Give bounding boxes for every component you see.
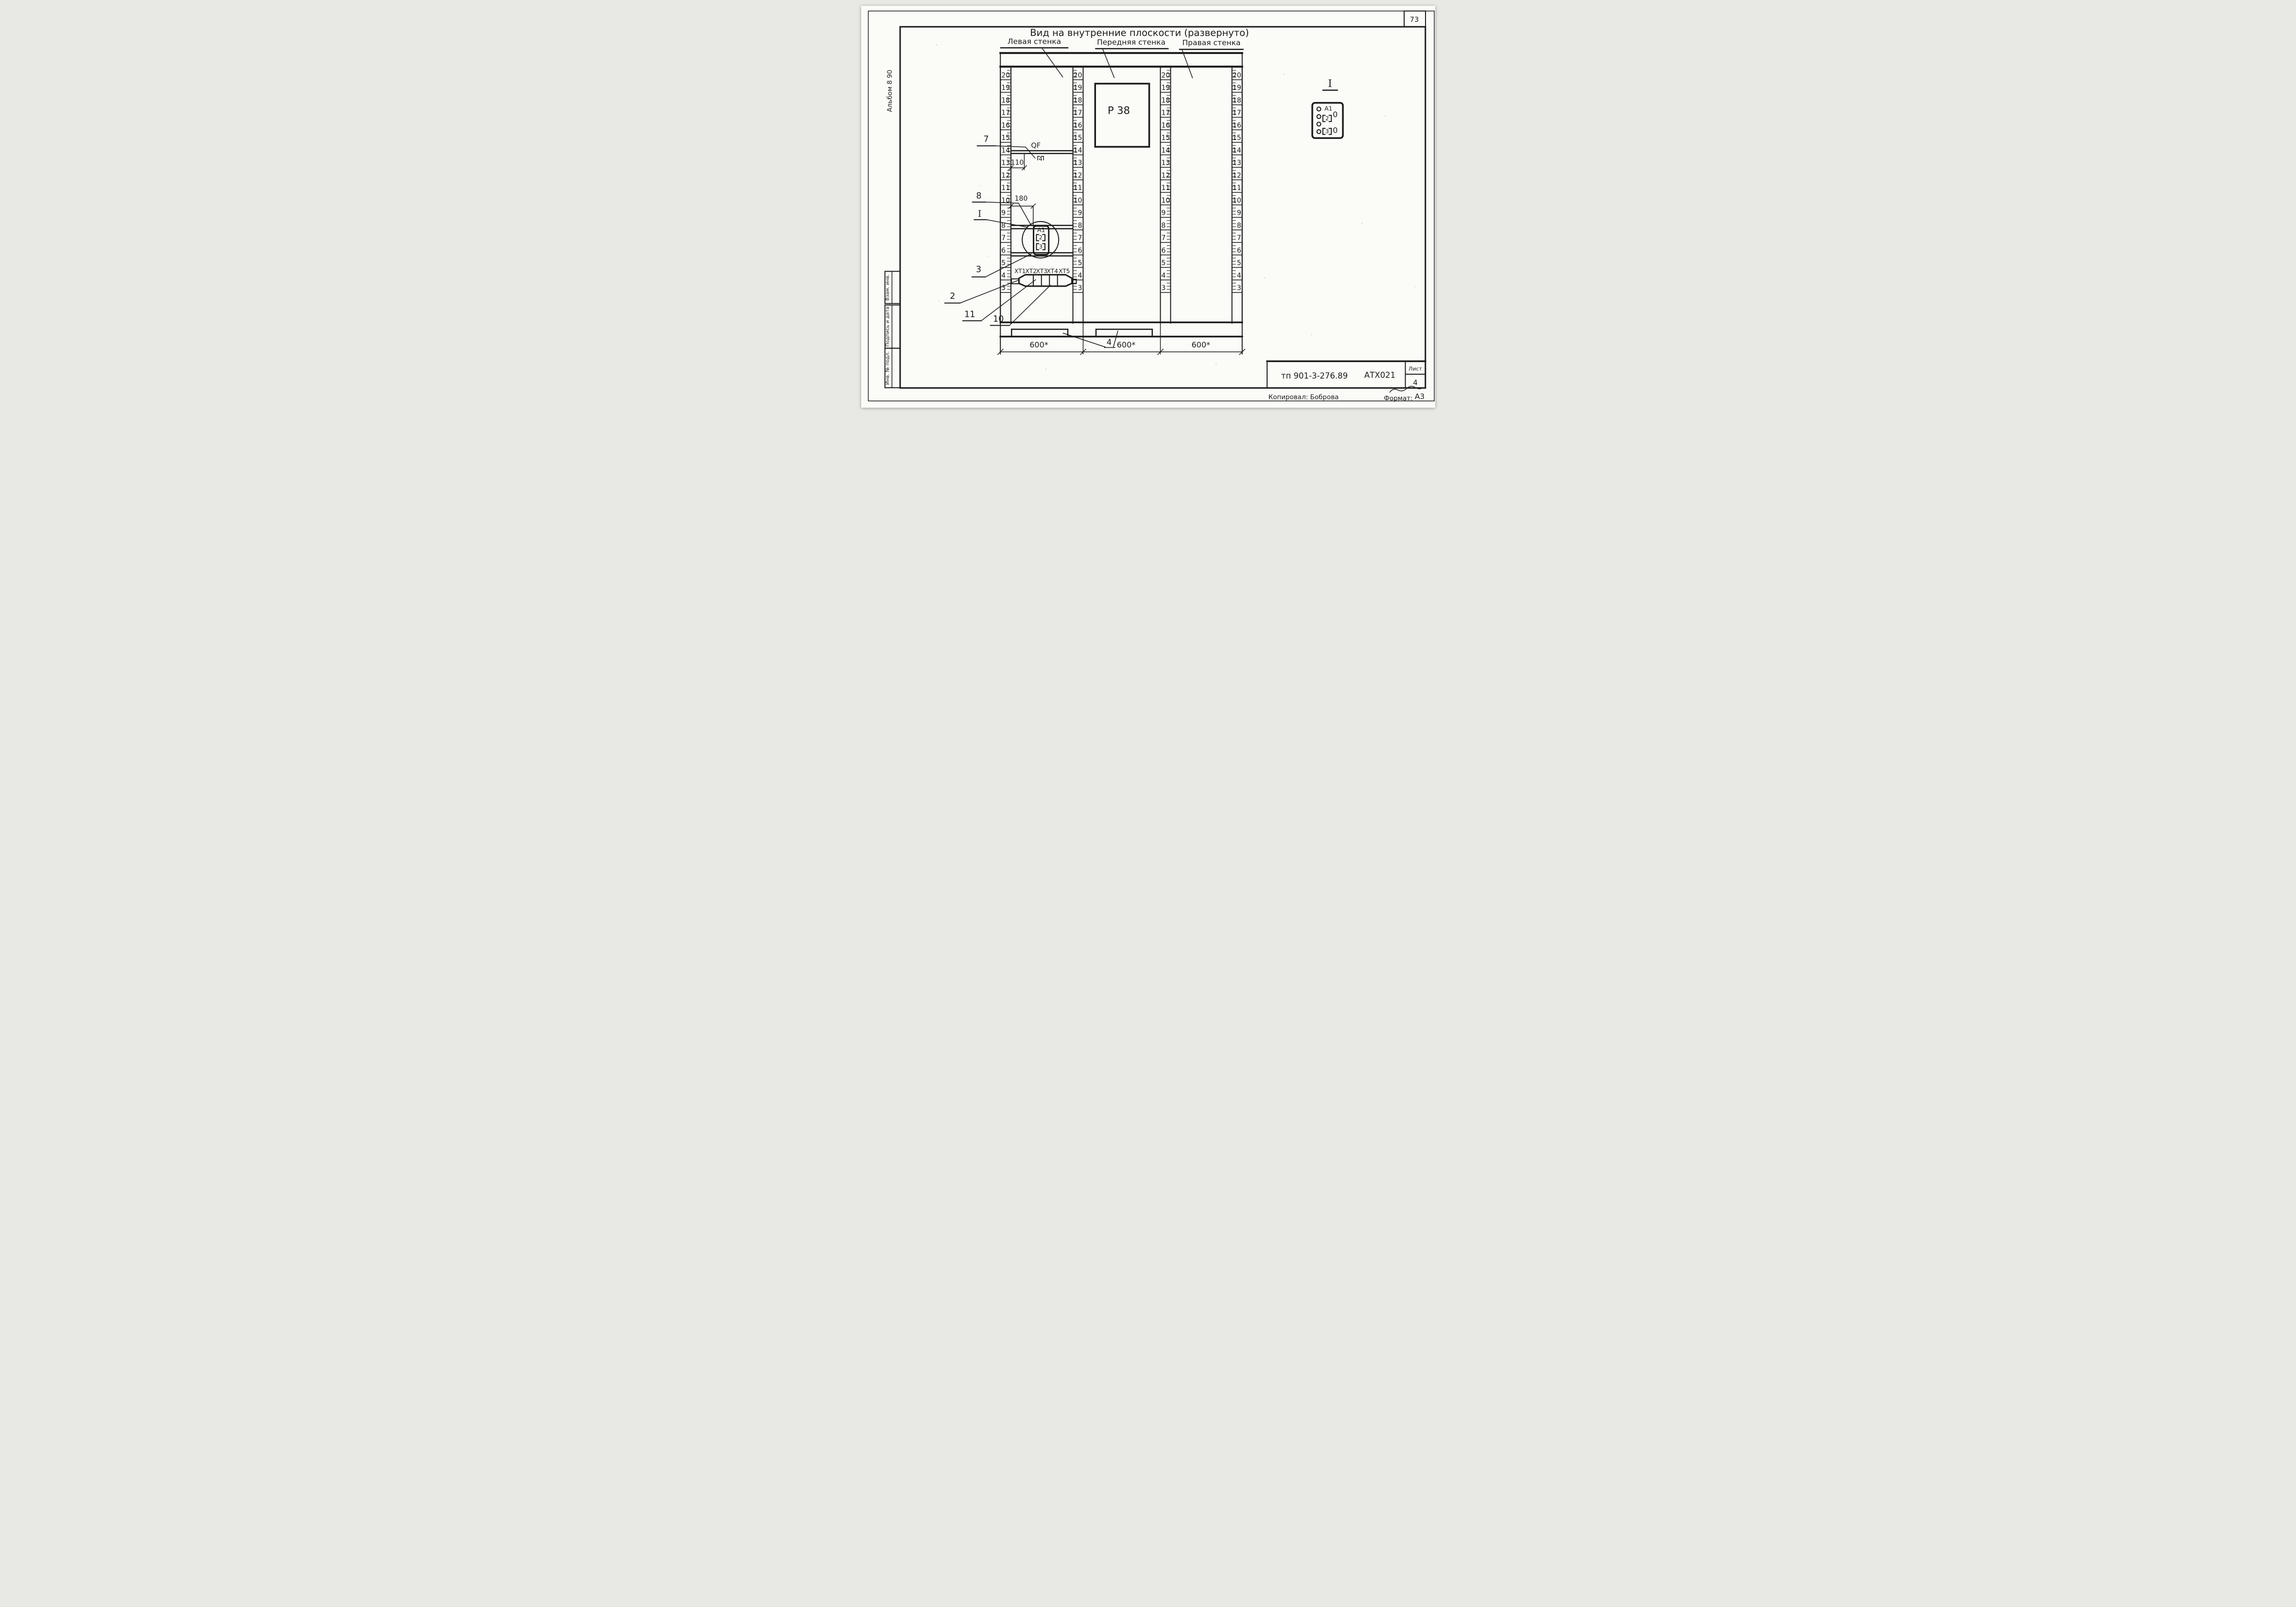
album-note: Альбом 8 90 — [886, 70, 894, 112]
ruler-number: 3 — [1236, 284, 1241, 292]
sheet-label: Лист — [1409, 366, 1422, 372]
ruler-number: 6 — [1001, 247, 1006, 255]
ruler-number: 11 — [1001, 184, 1010, 192]
dim-600-middle: 600* — [1116, 340, 1135, 349]
ruler-number: 6 — [1078, 247, 1082, 255]
p38-panel-label: Р 38 — [1107, 105, 1130, 117]
terminal-label: ХТ4 — [1046, 268, 1058, 275]
ruler-number: 4 — [1161, 272, 1165, 279]
cable-entry-tab — [1011, 329, 1068, 337]
slot-number: 2 — [1039, 234, 1042, 241]
callout-I: I — [977, 209, 981, 219]
sheet-frame: 73 — [868, 11, 1434, 401]
ruler-number: 3 — [1078, 284, 1082, 292]
ruler-number: 20 — [1001, 71, 1010, 79]
terminal-label: ХТ3 — [1036, 268, 1047, 275]
wall-labels: Левая стенка Передняя стенка Правая стен… — [1001, 37, 1243, 78]
ruler-number: 3 — [1161, 284, 1165, 292]
ruler-number: 6 — [1236, 247, 1241, 255]
ruler-number: 20 — [1232, 71, 1241, 79]
ruler-number: 11 — [1232, 184, 1241, 192]
ruler-number: 15 — [1001, 134, 1010, 142]
dim-600-left: 600* — [1029, 340, 1048, 349]
format-label: Формат: — [1384, 395, 1412, 402]
terminal-label: ХТ1 — [1014, 268, 1026, 275]
callout-10: 10 — [993, 314, 1004, 324]
ruler-number: 9 — [1001, 209, 1006, 217]
callout-3: 3 — [975, 265, 981, 275]
ruler-number: 18 — [1073, 97, 1082, 104]
page-number: 73 — [1409, 16, 1418, 24]
detail-I: I А1 2 0 3 0 — [1312, 78, 1343, 138]
ruler-number: 10 — [1161, 197, 1170, 205]
ruler-strip-3: 20191817161514131211109876543 — [1232, 67, 1242, 323]
ruler-number: 5 — [1001, 259, 1006, 267]
left-wall-equipment: QF 4 110 180 А1 — [1009, 142, 1076, 286]
dimension-180: 180 — [1009, 195, 1035, 226]
ruler-number: 11 — [1073, 184, 1082, 192]
a1-block-label: А1 — [1037, 226, 1045, 234]
cabinet-outline: 2019181716151413121110987654320191817161… — [1000, 53, 1242, 354]
slot-bracket — [1036, 243, 1039, 250]
ruler-number: 14 — [1161, 147, 1170, 155]
ruler-number: 10 — [1073, 197, 1082, 205]
ruler-number: 19 — [1232, 84, 1241, 92]
ruler-number: 14 — [1001, 147, 1010, 155]
ruler-number: 13 — [1073, 159, 1082, 167]
terminal-label: ХТ5 — [1059, 268, 1070, 275]
ruler-strip-2: 20191817161514131211109876543 — [1160, 67, 1170, 323]
callout-leader — [987, 220, 1027, 227]
ruler-number: 15 — [1073, 134, 1082, 142]
detail-slot-number: 2 — [1325, 115, 1328, 122]
slot-bracket — [1329, 128, 1331, 135]
detail-device-label: А1 — [1324, 105, 1332, 112]
ruler-number: 13 — [1232, 159, 1241, 167]
ruler-number: 13 — [1001, 159, 1010, 167]
ruler-number: 9 — [1161, 209, 1165, 217]
ruler-number: 18 — [1161, 97, 1170, 104]
copied-by: Копировал: Боброва — [1268, 394, 1339, 401]
callout-leader — [985, 202, 1031, 226]
cable-entry-tab — [1096, 329, 1152, 337]
ruler-number: 15 — [1232, 134, 1241, 142]
callout-11: 11 — [964, 310, 975, 320]
ruler-number: 17 — [1232, 109, 1241, 117]
ruler-number: 7 — [1161, 234, 1165, 242]
ruler-strip-0: 20191817161514131211109876543 — [1000, 67, 1011, 323]
outer-border — [868, 11, 1434, 401]
slot-bracket — [1322, 115, 1325, 121]
ruler-number: 20 — [1073, 71, 1082, 79]
ruler-number: 6 — [1161, 247, 1165, 255]
slot-number: 3 — [1039, 243, 1042, 250]
dim-600-right: 600* — [1191, 340, 1210, 349]
ruler-number: 12 — [1001, 172, 1010, 179]
slot-bracket — [1043, 243, 1045, 250]
ruler-number: 12 — [1232, 172, 1241, 179]
dim-180-text: 180 — [1014, 195, 1027, 203]
wall-label-right: Правая стенка — [1182, 38, 1240, 47]
ruler-number: 4 — [1078, 272, 1082, 279]
ruler-number: 9 — [1236, 209, 1241, 217]
callout-2: 2 — [950, 292, 955, 301]
rail-position-marker: 4 — [1038, 156, 1044, 162]
slot-bracket — [1322, 128, 1325, 135]
terminal-block-body — [1019, 275, 1072, 286]
margin-stamps: Альбом 8 90 Взам. инв. Подпись и дата Ин… — [885, 70, 900, 388]
ruler-number: 17 — [1001, 109, 1010, 117]
scan-speckle — [936, 44, 1415, 369]
sheet-number: 4 — [1413, 379, 1418, 387]
ruler-number: 7 — [1236, 234, 1241, 242]
callout-8: 8 — [976, 191, 981, 201]
controller-a1-block: А1 2 3 — [1033, 226, 1048, 255]
scanned-drawing-sheet: 73 Альбом 8 90 Взам. инв. Подпись и дата… — [861, 6, 1435, 408]
ruler-number: 5 — [1078, 259, 1082, 267]
rail-marker-number: 4 — [1039, 156, 1043, 162]
ruler-number: 4 — [1001, 272, 1006, 279]
doc-code: тп 901-3-276.89 — [1281, 371, 1347, 380]
callout-leader — [1063, 333, 1105, 347]
doc-mark: АТХ021 — [1364, 371, 1395, 380]
ruler-number: 11 — [1161, 184, 1170, 192]
ruler-number: 12 — [1073, 172, 1082, 179]
ruler-number: 4 — [1236, 272, 1241, 279]
ruler-number: 16 — [1161, 121, 1170, 129]
handwritten-signature — [1390, 386, 1422, 392]
ruler-number: 19 — [1073, 84, 1082, 92]
slot-bracket — [1043, 235, 1045, 241]
ruler-number: 18 — [1232, 97, 1241, 104]
callout-leader — [981, 280, 1035, 321]
callout-4: 4 — [1063, 331, 1118, 347]
drawing-canvas: 73 Альбом 8 90 Взам. инв. Подпись и дата… — [861, 6, 1435, 408]
screw-hole — [1317, 115, 1321, 119]
ruler-number: 10 — [1001, 197, 1010, 205]
screw-hole — [1317, 122, 1321, 126]
ruler-strip-1: 20191817161514131211109876543 — [1073, 67, 1083, 323]
wall-label-leader — [1182, 51, 1192, 78]
screw-hole — [1317, 130, 1321, 134]
wall-label-left: Левая стенка — [1007, 37, 1061, 46]
ruler-number: 7 — [1001, 234, 1006, 242]
callout-leader — [1009, 285, 1050, 326]
ruler-number: 16 — [1232, 121, 1241, 129]
stamp-label-vzam: Взам. инв. — [885, 274, 890, 300]
ruler-number: 8 — [1161, 222, 1165, 229]
ruler-number: 18 — [1001, 97, 1010, 104]
ruler-number: 19 — [1001, 84, 1010, 92]
title-block: тп 901-3-276.89 АТХ021 Лист 4 Копировал:… — [1267, 361, 1426, 402]
indicator-lamp: 0 — [1333, 110, 1338, 119]
ruler-number: 15 — [1161, 134, 1170, 142]
slot-bracket — [1036, 235, 1039, 241]
ruler-number: 14 — [1232, 147, 1241, 155]
ruler-number: 17 — [1161, 109, 1170, 117]
ruler-number: 8 — [1236, 222, 1241, 229]
breaker-label: QF — [1031, 142, 1041, 150]
front-wall-equipment: Р 38 — [1095, 84, 1149, 147]
ruler-number: 9 — [1078, 209, 1082, 217]
ruler-number: 19 — [1161, 84, 1170, 92]
detail-title: I — [1328, 78, 1332, 89]
ruler-number: 17 — [1073, 109, 1082, 117]
ruler-number: 13 — [1161, 159, 1170, 167]
stamp-label-podpis: Подпись и дата — [885, 307, 890, 347]
ruler-number: 7 — [1078, 234, 1082, 242]
cabinet-base: 4 600* 600* 600* — [997, 322, 1245, 354]
format-value: А3 — [1414, 392, 1424, 401]
screw-hole — [1317, 107, 1321, 111]
drawing-title: Вид на внутренние плоскости (развернуто) — [1030, 27, 1249, 38]
detail-slot-number: 3 — [1325, 128, 1328, 135]
stamp-label-inv: Инв. № подл. — [885, 351, 890, 385]
slot-bracket — [1329, 115, 1331, 121]
ruler-number: 5 — [1161, 259, 1165, 267]
callout-4-number: 4 — [1106, 338, 1112, 347]
ruler-number: 10 — [1232, 197, 1241, 205]
terminal-labels: ХТ1ХТ2ХТ3ХТ4ХТ5 — [1014, 268, 1070, 275]
ruler-number: 20 — [1161, 71, 1170, 79]
ruler-number: 16 — [1073, 121, 1082, 129]
callout-7: 7 — [983, 135, 989, 144]
ruler-number: 8 — [1078, 222, 1082, 229]
ruler-number: 16 — [1001, 121, 1010, 129]
callouts: 7 8 I 3 2 11 10 — [945, 135, 1050, 326]
inner-frame — [900, 27, 1426, 388]
ruler-number: 12 — [1161, 172, 1170, 179]
wall-label-front: Передняя стенка — [1096, 38, 1165, 47]
indicator-lamp: 0 — [1333, 126, 1338, 135]
terminal-label: ХТ2 — [1025, 268, 1036, 275]
ruler-number: 14 — [1073, 147, 1082, 155]
terminal-block — [1011, 275, 1077, 286]
ruler-number: 5 — [1236, 259, 1241, 267]
